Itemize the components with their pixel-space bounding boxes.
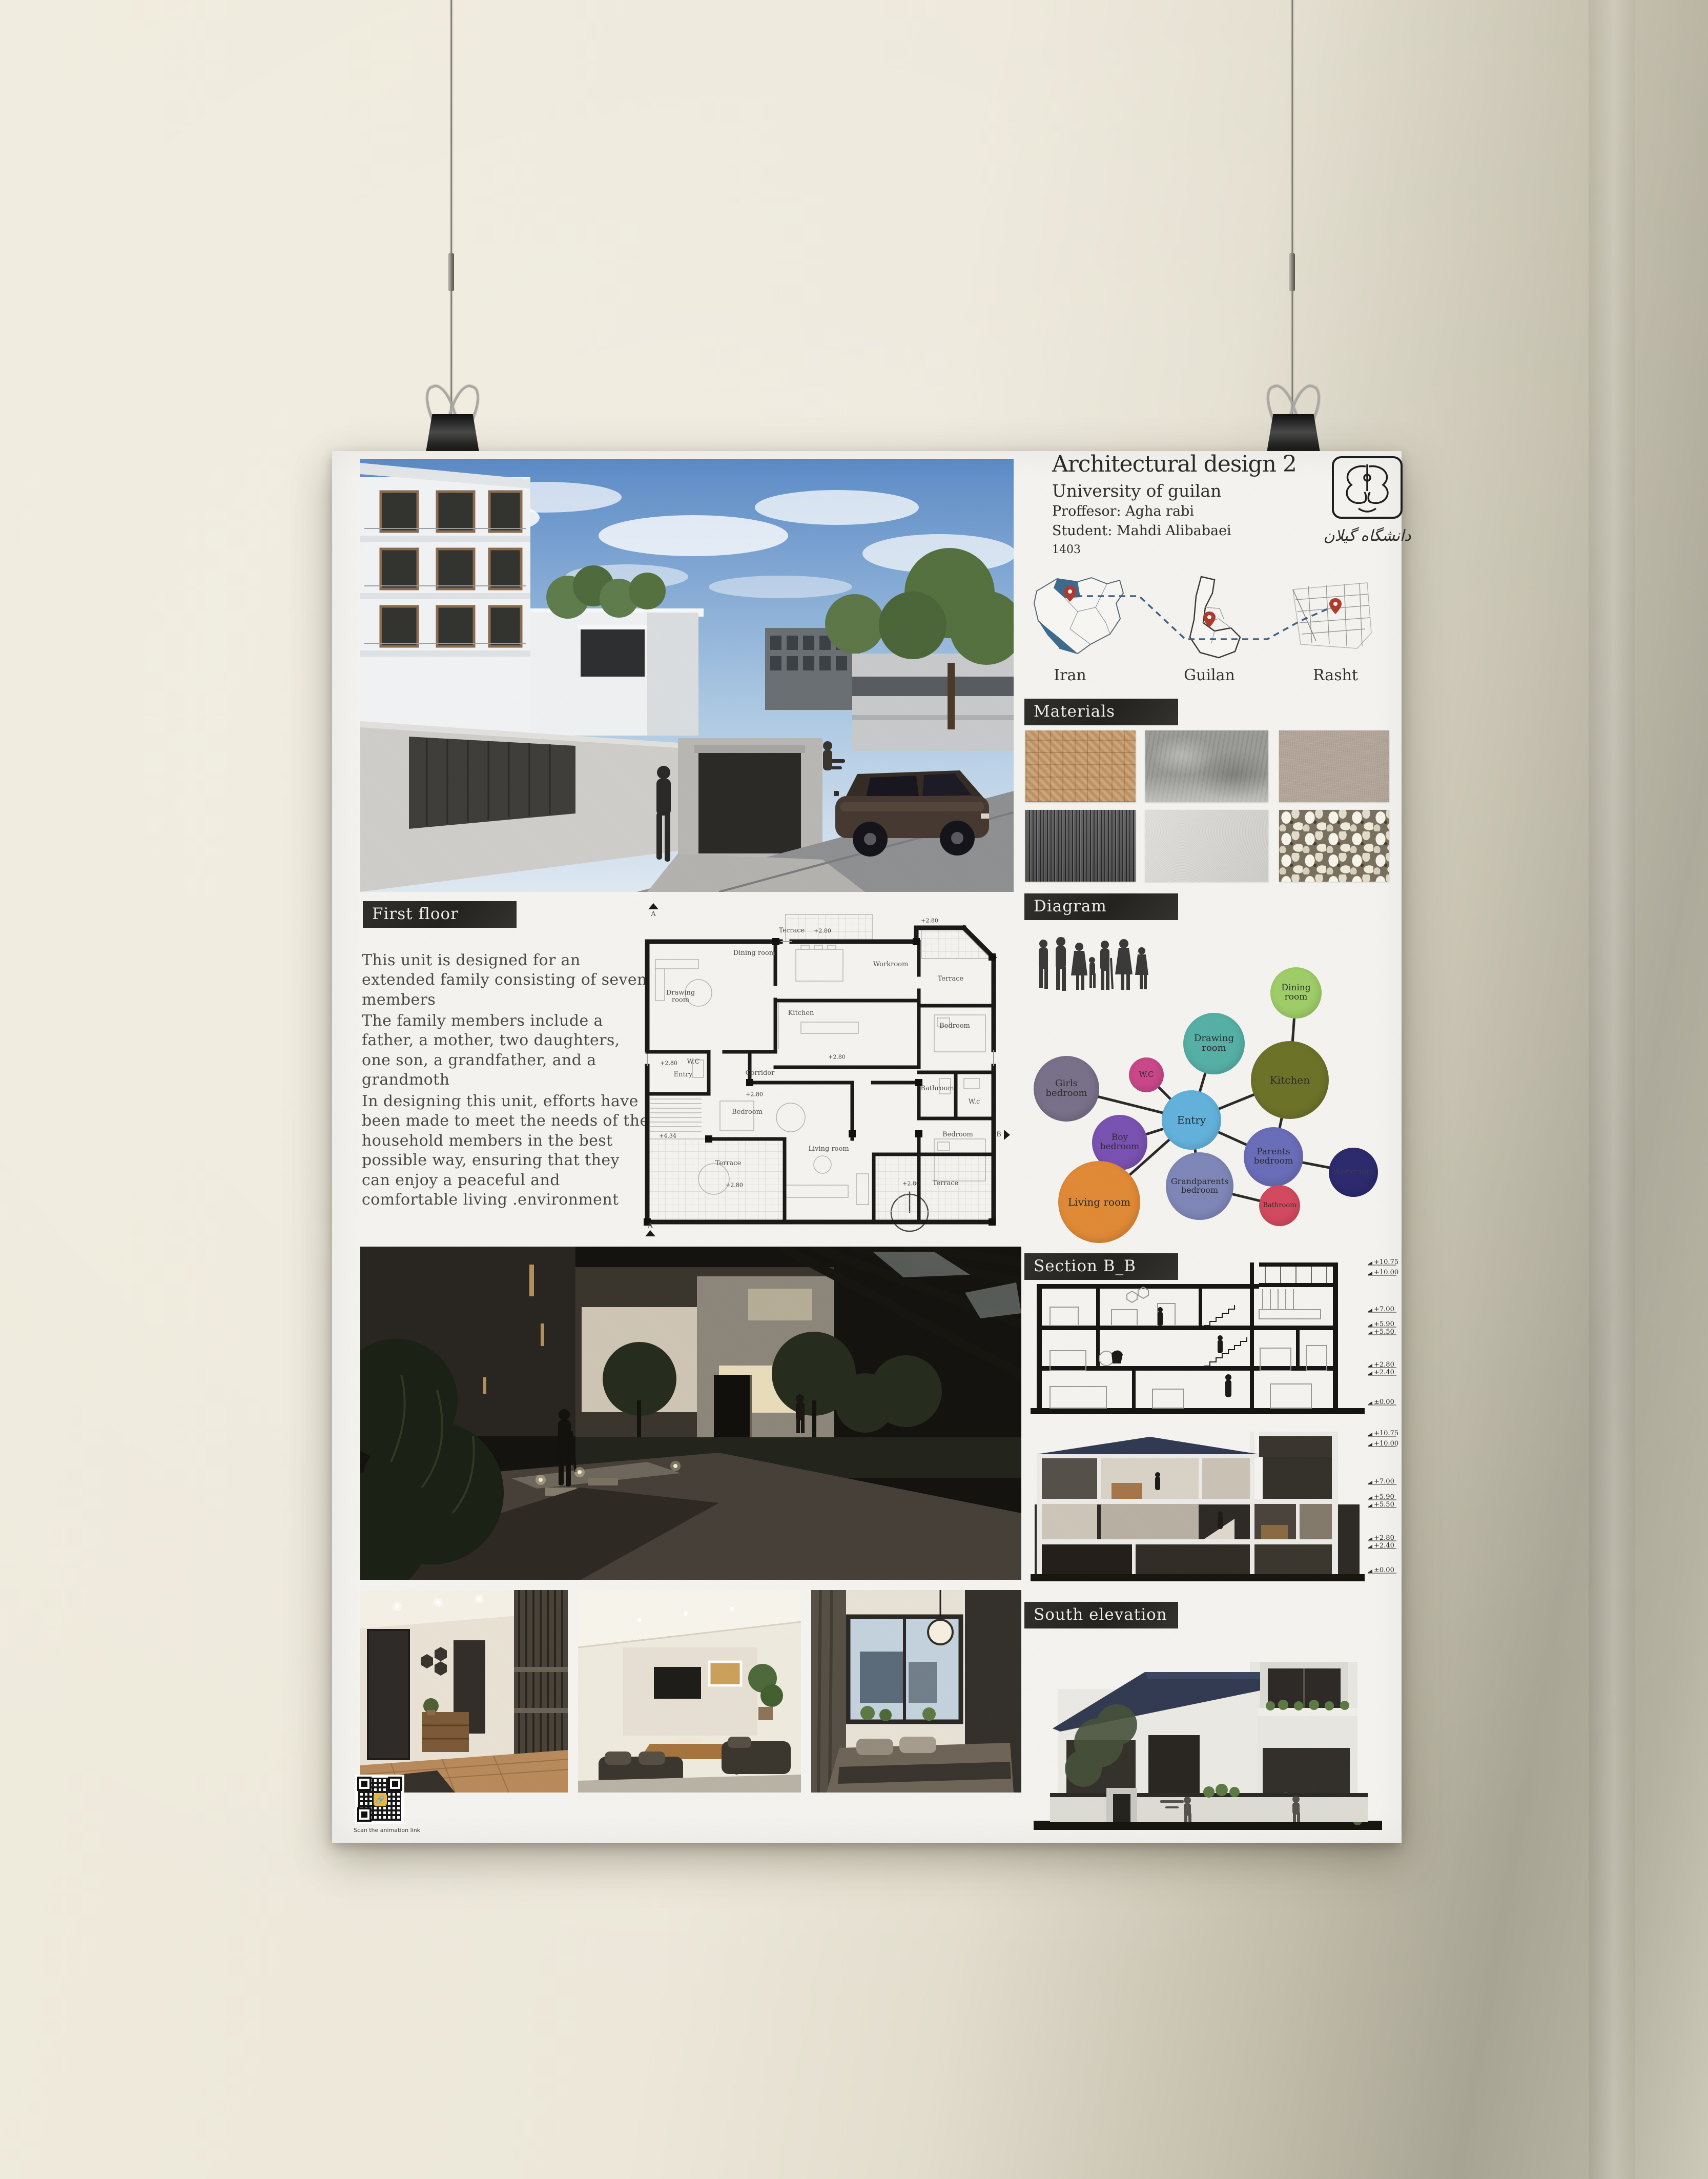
plan-room-label: W.C xyxy=(687,1058,699,1066)
svg-text:±0.00: ±0.00 xyxy=(1374,1398,1394,1406)
svg-text:+10.75: +10.75 xyxy=(1374,1430,1398,1437)
svg-text:+2.80: +2.80 xyxy=(1374,1534,1394,1542)
first-floor-paragraph-1: This unit is designed for an extended fa… xyxy=(362,951,651,1010)
elevation-markers: +10.75 +10.00 +7.00 +5.90 +5.50 +2.80 +2… xyxy=(1368,1430,1398,1574)
floor-plan-drawing xyxy=(632,898,1021,1239)
diagram-header: Diagram xyxy=(1024,893,1178,920)
poster-professor: Proffesor: Agha rabi xyxy=(1052,503,1194,519)
first-floor-plan: Terrace +2.80 Dining room +2.80 Workroom… xyxy=(632,898,1021,1239)
south-elevation-render xyxy=(1030,1640,1388,1840)
plan-level-marker: +2.80 xyxy=(828,1054,846,1061)
bubble-grandparents-bedroom: Grandparents bedroom xyxy=(1166,1152,1233,1220)
svg-text:+7.00: +7.00 xyxy=(1374,1478,1394,1485)
plan-room-label: Terrace xyxy=(715,1160,742,1167)
bubble-label: Grandparents bedroom xyxy=(1166,1177,1233,1195)
rasht-map xyxy=(1293,583,1371,648)
material-swatch-dark-slats xyxy=(1025,810,1136,882)
section-bb-rendered: +10.75 +10.00 +7.00 +5.90 +5.50 +2.80 +2… xyxy=(1030,1428,1404,1581)
rendered-clerestory-room xyxy=(1259,1436,1332,1457)
section-people xyxy=(1112,1307,1231,1397)
hanging-wire-right xyxy=(1291,0,1293,416)
plan-room-label: Dining room xyxy=(733,950,775,957)
svg-text:+5.90: +5.90 xyxy=(1374,1493,1394,1501)
night-courtyard-render xyxy=(360,1247,1021,1580)
plan-level-marker: +2.80 xyxy=(746,1091,763,1098)
svg-text:+2.80: +2.80 xyxy=(1374,1361,1394,1369)
svg-text:+2.40: +2.40 xyxy=(1374,1542,1394,1550)
first-floor-header: First floor xyxy=(363,901,517,928)
qr-code: 🔗 xyxy=(355,1775,404,1824)
bubble-kitchen: Kitchen xyxy=(1251,1041,1329,1119)
svg-text:+7.00: +7.00 xyxy=(1374,1306,1394,1313)
first-floor-paragraph-3: In designing this unit, efforts have bee… xyxy=(362,1092,651,1210)
south-elevation-header: South elevation xyxy=(1024,1602,1178,1628)
material-swatch-rough-concrete xyxy=(1145,730,1268,802)
rendered-roof xyxy=(1037,1437,1259,1454)
wire-crimp-sleeve xyxy=(448,253,454,291)
bubble-parents-bedroom: Parents bedroom xyxy=(1244,1127,1303,1187)
tv-panel xyxy=(654,1667,701,1699)
qr-caption: Scan the animation link xyxy=(354,1827,420,1834)
materials-header: Materials xyxy=(1024,699,1178,725)
wall-corner-crease xyxy=(1589,0,1635,2179)
bubble-drawing-room: Drawing room xyxy=(1183,1013,1245,1074)
bubble-label: W.C xyxy=(1139,1071,1154,1079)
plan-room-label: Terrace xyxy=(938,975,964,983)
poster-student: Student: Mahdi Alibabaei xyxy=(1052,523,1231,539)
bubble-label: Bathroom xyxy=(1263,1202,1296,1209)
poster-university: University of guilan xyxy=(1052,481,1221,501)
plan-room-label: Workroom xyxy=(873,961,909,968)
bubble-bathroom: Bathroom xyxy=(1259,1185,1300,1226)
exterior-street-render xyxy=(360,459,1014,892)
bubble-girls-bedroom: Girls bedroom xyxy=(1034,1056,1099,1122)
plan-room-label: Bedroom xyxy=(942,1131,973,1138)
plan-room-label: W.c xyxy=(969,1098,980,1106)
wire-crimp-sleeve xyxy=(1289,253,1295,291)
university-logo xyxy=(1329,455,1406,527)
plan-level-marker: +2.80 xyxy=(902,1180,920,1187)
bubble-workroom: Workroom xyxy=(1329,1148,1378,1197)
qr-link-icon: 🔗 xyxy=(374,1793,387,1806)
material-swatch-white-pebbles xyxy=(1279,810,1389,882)
material-swatch-stucco xyxy=(1279,730,1389,802)
svg-text:+5.50: +5.50 xyxy=(1374,1501,1394,1509)
interior-render-corridor xyxy=(360,1590,568,1793)
plan-level-marker: +2.80 xyxy=(726,1182,743,1189)
svg-text:+5.90: +5.90 xyxy=(1374,1320,1394,1328)
plan-room-label: Drawing room xyxy=(662,989,699,1003)
svg-text:±0.00: ±0.00 xyxy=(1374,1566,1394,1574)
svg-text:+10.00: +10.00 xyxy=(1374,1269,1398,1276)
first-floor-paragraph-2: The family members include a father, a m… xyxy=(362,1011,651,1090)
plan-room-label: Terrace xyxy=(933,1180,959,1187)
bubble-label: Girls bedroom xyxy=(1034,1079,1099,1098)
plan-level-marker: +2.80 xyxy=(660,1060,677,1067)
plan-room-label: Entry xyxy=(674,1071,693,1078)
poster-title: Architectural design 2 xyxy=(1052,451,1297,477)
wall-art xyxy=(709,1662,741,1685)
plan-room-label: Bedroom xyxy=(732,1109,763,1116)
bubble-label: Drawing room xyxy=(1183,1034,1245,1053)
bubble-living-room: Living room xyxy=(1058,1161,1140,1243)
svg-text:+5.50: +5.50 xyxy=(1374,1328,1394,1336)
plan-level-marker: +2.80 xyxy=(814,928,831,934)
architecture-presentation-poster: First floor This unit is designed for an… xyxy=(332,451,1402,1843)
material-swatch-wood-parquet xyxy=(1025,730,1136,802)
bubble-label: Workroom xyxy=(1333,1168,1373,1176)
cyclist-silhouette xyxy=(823,741,832,770)
svg-text:+10.00: +10.00 xyxy=(1374,1440,1398,1448)
plan-room-label: Kitchen xyxy=(788,1010,814,1017)
location-maps xyxy=(1029,572,1383,666)
bubble-wc: W.C xyxy=(1129,1057,1164,1092)
interior-render-living-room xyxy=(578,1590,801,1793)
white-house xyxy=(527,608,704,736)
plan-room-label: Bathroom xyxy=(920,1085,954,1092)
plan-section-letter: A xyxy=(648,1223,652,1230)
hanging-wire-left xyxy=(450,0,452,416)
section-furniture xyxy=(1050,1287,1327,1408)
svg-text:+10.75: +10.75 xyxy=(1374,1258,1398,1266)
bubble-label: Parents bedroom xyxy=(1244,1148,1303,1166)
plan-level-marker: +2.80 xyxy=(921,918,938,924)
qr-finder xyxy=(357,1777,372,1791)
bubble-label: Kitchen xyxy=(1270,1075,1310,1086)
stairs xyxy=(1204,1305,1247,1366)
material-swatch-light-plaster xyxy=(1145,810,1268,882)
map-label-guilan: Guilan xyxy=(1184,666,1235,684)
bubble-label: Boy bedroom xyxy=(1092,1133,1147,1152)
svg-text:+2.40: +2.40 xyxy=(1374,1369,1394,1376)
left-building xyxy=(360,463,530,739)
bubble-label: Living room xyxy=(1068,1197,1130,1208)
map-label-rasht: Rasht xyxy=(1313,666,1358,684)
room-bubble-diagram: Dining room Drawing room W.C Kitchen Gir… xyxy=(1024,959,1404,1251)
plan-section-letter: B xyxy=(996,1131,1001,1138)
bubble-label: Entry xyxy=(1177,1115,1206,1126)
plan-room-label: Bedroom xyxy=(939,1023,970,1030)
interior-render-bedroom xyxy=(811,1590,1021,1793)
clerestory-glazing xyxy=(1265,1267,1327,1283)
bubble-label: Dining room xyxy=(1270,984,1322,1002)
bubble-entry: Entry xyxy=(1162,1090,1221,1150)
qr-finder xyxy=(388,1777,402,1791)
plan-room-label: Corridor xyxy=(746,1070,775,1077)
plan-section-letter: A xyxy=(651,911,655,918)
university-logo-text: دانشگاه گیلان xyxy=(1319,527,1416,545)
bubble-dining-room: Dining room xyxy=(1270,967,1322,1019)
map-label-iran: Iran xyxy=(1054,666,1086,684)
plan-room-label: Terrace xyxy=(779,927,805,934)
plan-room-label: Living room xyxy=(808,1146,849,1153)
poster-year: 1403 xyxy=(1052,543,1081,556)
section-bb-line-drawing: +10.75 +10.00 +7.00 +5.90 +5.50 +2.80 +2… xyxy=(1030,1258,1404,1417)
iran-map xyxy=(1034,578,1123,654)
qr-finder xyxy=(357,1807,372,1822)
plan-level-marker: +4.34 xyxy=(659,1133,676,1139)
elevation-markers: +10.75 +10.00 +7.00 +5.90 +5.50 +2.80 +2… xyxy=(1368,1258,1398,1406)
